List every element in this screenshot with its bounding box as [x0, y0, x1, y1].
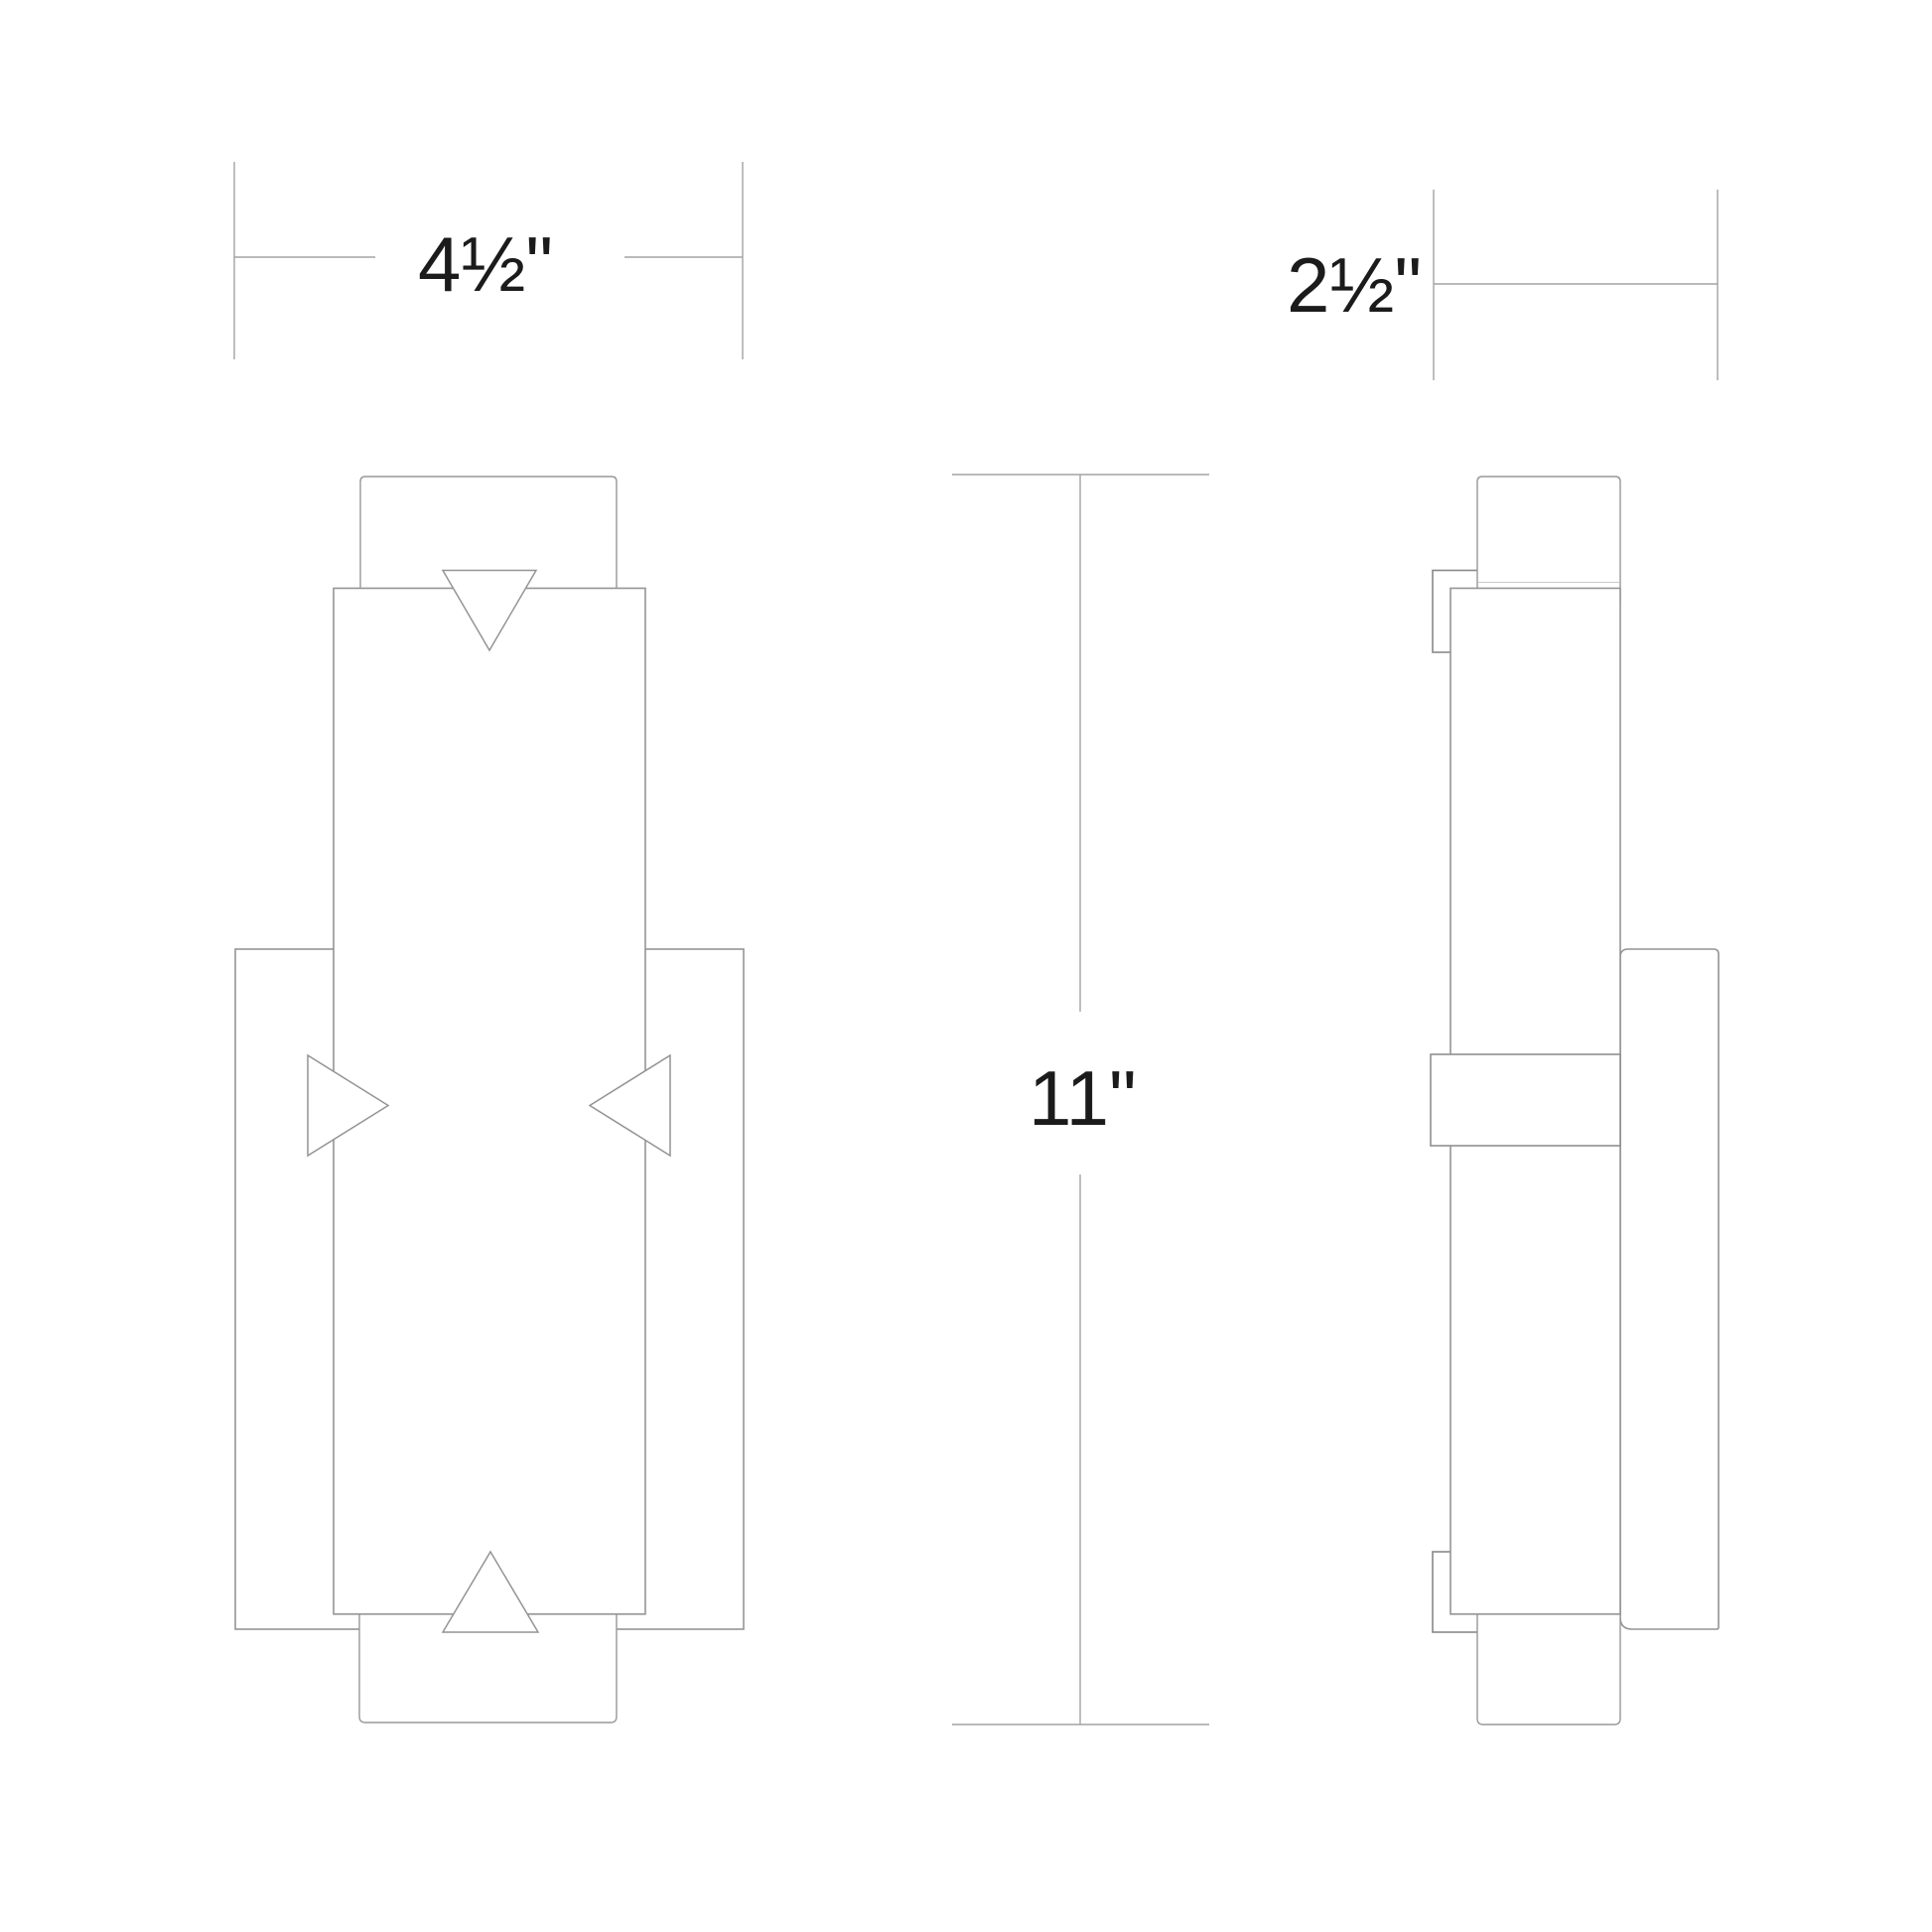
svg-text:11": 11" — [1029, 1054, 1137, 1142]
svg-text:4½": 4½" — [418, 220, 553, 308]
svg-text:2½": 2½" — [1287, 241, 1422, 329]
